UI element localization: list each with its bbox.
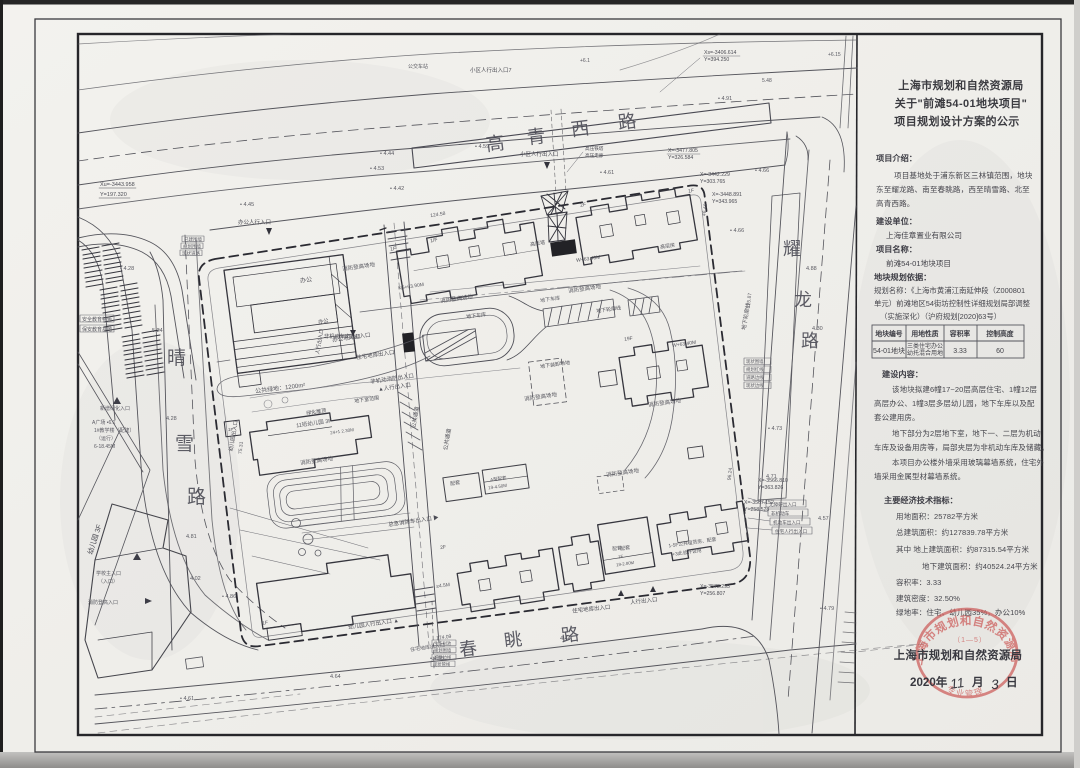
svg-text:Y=343.965: Y=343.965: [712, 199, 737, 205]
svg-text:地块规划依据：: 地块规划依据：: [874, 272, 931, 282]
svg-text:路: 路: [617, 110, 638, 133]
svg-text:幼托混合用地: 幼托混合用地: [907, 349, 943, 357]
svg-text:1#教学楼（配建）: 1#教学楼（配建）: [94, 427, 135, 434]
svg-text:耀: 耀: [783, 239, 801, 259]
svg-text:高层办公、1幢3层多层幼儿园，地下车库以及配: 高层办公、1幢3层多层幼儿园，地下车库以及配: [874, 398, 1035, 408]
svg-text:6-18.45M: 6-18.45M: [94, 444, 115, 450]
svg-text:• 4.53: • 4.53: [370, 166, 384, 172]
svg-text:Y=394.250: Y=394.250: [704, 57, 729, 63]
svg-text:Xu=-3443.958: Xu=-3443.958: [100, 182, 135, 188]
svg-text:X=-3477.805: X=-3477.805: [668, 148, 698, 154]
svg-text:三类住宅办公: 三类住宅办公: [907, 342, 943, 350]
svg-text:安全教育特色: 安全教育特色: [82, 316, 112, 323]
svg-text:现状围墙: 现状围墙: [746, 358, 764, 365]
svg-text:配套: 配套: [450, 479, 461, 487]
svg-text:小区人行出入口7: 小区人行出入口7: [470, 66, 512, 74]
svg-text:路: 路: [801, 331, 819, 351]
svg-text:Y=256.807: Y=256.807: [700, 591, 725, 597]
svg-text:• 4.91: • 4.91: [718, 96, 732, 102]
svg-text:4.28: 4.28: [166, 416, 177, 422]
svg-text:3.33: 3.33: [953, 348, 967, 355]
svg-text:本项目办公楼外墙采用玻璃幕墙系统，住宅外: 本项目办公楼外墙采用玻璃幕墙系统，住宅外: [892, 457, 1044, 467]
svg-text:住宅人行出入口: 住宅人行出入口: [775, 528, 808, 535]
svg-text:墙采用金属型材幕墙系统。: 墙采用金属型材幕墙系统。: [874, 471, 965, 481]
svg-text:• 4.61: • 4.61: [180, 696, 194, 702]
svg-text:东至耀龙路、南至春眺路，西至晴雪路、北至: 东至耀龙路、南至春眺路，西至晴雪路、北至: [876, 184, 1030, 194]
svg-text:• 4.44: • 4.44: [380, 151, 394, 157]
svg-text:（1—5）: （1—5）: [953, 636, 987, 644]
svg-text:1/F: 1/F: [430, 237, 438, 244]
svg-text:1F: 1F: [390, 246, 397, 253]
svg-text:控制高度: 控制高度: [986, 329, 1013, 338]
svg-text:关于"前滩54-01地块项目": 关于"前滩54-01地块项目": [895, 96, 1028, 110]
svg-text:套公建用房。: 套公建用房。: [874, 412, 920, 422]
svg-text:学校主入口: 学校主入口: [96, 570, 121, 577]
svg-text:X=-3566.810: X=-3566.810: [758, 478, 788, 484]
svg-text:公交车站: 公交车站: [408, 63, 428, 70]
svg-text:车库及设备用房等，局部夹层为非机动车库及储藏。: 车库及设备用房等，局部夹层为非机动车库及储藏。: [874, 442, 1049, 452]
svg-text:4.88: 4.88: [806, 266, 817, 272]
svg-text:• 4.66: • 4.66: [755, 168, 769, 174]
svg-text:项目规划设计方案的公示: 项目规划设计方案的公示: [894, 114, 1019, 128]
svg-text:11: 11: [949, 675, 965, 692]
svg-text:西: 西: [570, 117, 591, 140]
svg-text:月: 月: [971, 676, 984, 689]
svg-text:用地面积：25782平方米: 用地面积：25782平方米: [896, 511, 979, 521]
svg-text:（运行）: （运行）: [96, 435, 116, 442]
svg-text:X=-3573.295: X=-3573.295: [700, 584, 730, 590]
svg-text:规划红线: 规划红线: [746, 366, 764, 373]
svg-text:现状道路: 现状道路: [182, 250, 200, 257]
svg-text:用地性质: 用地性质: [910, 329, 938, 338]
svg-text:规划名称：《上海市黄浦江南延伸段（Z000801: 规划名称：《上海市黄浦江南延伸段（Z000801: [874, 286, 1025, 295]
svg-text:日: 日: [1006, 676, 1018, 689]
svg-text:新增绿化入口: 新增绿化入口: [100, 405, 130, 412]
svg-text:前滩54-01地块项目: 前滩54-01地块项目: [886, 258, 951, 268]
svg-text:4.30: 4.30: [812, 326, 823, 332]
svg-text:路: 路: [560, 624, 580, 646]
svg-text:保安教育基地: 保安教育基地: [82, 326, 112, 333]
svg-text:A广场 •6.1: A广场 •6.1: [92, 419, 116, 426]
svg-text:现状边线: 现状边线: [746, 382, 764, 389]
svg-text:规划围墙: 规划围墙: [434, 647, 452, 654]
svg-text:龙: 龙: [794, 290, 812, 310]
svg-text:该地块拟建6幢17~20层高层住宅、1幢12层: 该地块拟建6幢17~20层高层住宅、1幢12层: [892, 384, 1037, 394]
svg-text:容积率: 容积率: [950, 329, 971, 338]
svg-text:• 4.61: • 4.61: [600, 170, 614, 176]
svg-text:地下部分为2层地下室，地下一、二层为机动: 地下部分为2层地下室，地下一、二层为机动: [892, 428, 1041, 438]
svg-text:4.64: 4.64: [330, 674, 341, 680]
svg-text:4.02: 4.02: [190, 576, 201, 582]
svg-text:其中 地上建筑面积：约87315.54平方米: 其中 地上建筑面积：约87315.54平方米: [896, 544, 1029, 554]
svg-text:上海佳章置业有限公司: 上海佳章置业有限公司: [886, 230, 962, 240]
svg-text:• 4.73: • 4.73: [768, 426, 782, 432]
svg-text:2020年: 2020年: [910, 675, 948, 689]
svg-text:X=-3442.229: X=-3442.229: [700, 172, 730, 178]
svg-text:（入口）: （入口）: [98, 579, 118, 585]
svg-text:地下建筑面积：约40524.24平方米: 地下建筑面积：约40524.24平方米: [922, 561, 1038, 571]
svg-text:地块编号: 地块编号: [875, 329, 902, 338]
svg-text:建设内容：: 建设内容：: [882, 369, 923, 379]
svg-text:• 4.42: • 4.42: [390, 186, 404, 192]
svg-text:建筑密度：32.50%: 建筑密度：32.50%: [896, 593, 960, 603]
svg-text:青: 青: [526, 125, 547, 148]
svg-text:高压铁塔: 高压铁塔: [585, 145, 604, 152]
svg-text:5.24: 5.24: [152, 328, 163, 334]
svg-text:60: 60: [996, 348, 1004, 355]
svg-text:X=-3448.891: X=-3448.891: [712, 192, 742, 198]
svg-text:4.81: 4.81: [186, 534, 197, 540]
svg-text:容积率：3.33: 容积率：3.33: [896, 577, 941, 587]
svg-text:+6.1: +6.1: [580, 58, 590, 64]
svg-text:春: 春: [458, 638, 478, 660]
svg-text:机动车出入口: 机动车出入口: [773, 519, 801, 526]
svg-text:4.57: 4.57: [818, 516, 829, 522]
svg-text:高青西路。: 高青西路。: [876, 198, 914, 208]
svg-text:晴: 晴: [167, 347, 186, 369]
svg-text:2F: 2F: [580, 202, 587, 209]
svg-text:已建围墙: 已建围墙: [184, 236, 202, 243]
svg-text:2F: 2F: [440, 544, 447, 551]
svg-text:单元）前滩地区54街坊控制性详细规划局部调整: 单元）前滩地区54街坊控制性详细规划局部调整: [874, 299, 1031, 308]
svg-text:5.48: 5.48: [762, 78, 772, 84]
svg-text:消防登高入口: 消防登高入口: [88, 599, 118, 606]
svg-text:• 4.66: • 4.66: [730, 228, 744, 234]
svg-text:54-01地块: 54-01地块: [873, 346, 905, 355]
svg-text:项目介绍：: 项目介绍：: [876, 153, 917, 163]
svg-text:• 4.79: • 4.79: [820, 606, 834, 612]
svg-text:项目基地处于浦东新区三林镇范围，地块: 项目基地处于浦东新区三林镇范围，地块: [894, 170, 1033, 180]
svg-text:道路边线: 道路边线: [746, 374, 764, 381]
svg-text:办公人行入口: 办公人行入口: [238, 218, 271, 226]
svg-text:眺: 眺: [503, 629, 523, 651]
svg-text:1F: 1F: [688, 188, 695, 195]
svg-text:Y=326.584: Y=326.584: [668, 155, 693, 161]
svg-text:4.44: 4.44: [560, 636, 571, 642]
svg-text:• 4.86: • 4.86: [222, 594, 236, 600]
svg-text:路: 路: [187, 486, 206, 508]
svg-text:• 4.59: • 4.59: [475, 144, 489, 150]
svg-text:项目名称：: 项目名称：: [876, 244, 917, 254]
svg-text:1F: 1F: [262, 620, 269, 627]
svg-text:上海市规划和自然资源局: 上海市规划和自然资源局: [898, 78, 1023, 92]
svg-text:• 4.45: • 4.45: [240, 202, 254, 208]
svg-text:规划围墙: 规划围墙: [183, 243, 201, 250]
svg-text:主要经济技术指标：: 主要经济技术指标：: [884, 495, 958, 505]
svg-text:Y=303.765: Y=303.765: [700, 179, 725, 185]
svg-text:现状管线: 现状管线: [433, 661, 451, 668]
svg-text:上海市规划和自然资源局: 上海市规划和自然资源局: [894, 648, 1023, 662]
svg-text:总建筑面积：约127839.78平方米: 总建筑面积：约127839.78平方米: [896, 527, 1009, 537]
svg-text:• 4.28: • 4.28: [120, 266, 134, 272]
svg-text:Y=197.320: Y=197.320: [100, 192, 127, 198]
svg-text:建设单位：: 建设单位：: [876, 216, 917, 226]
svg-text:无障碍出入口: 无障碍出入口: [769, 501, 797, 508]
svg-text:小区人行出入口: 小区人行出入口: [520, 150, 559, 158]
svg-text:（实施深化）（沪府规划[2020]63号）: （实施深化）（沪府规划[2020]63号）: [880, 312, 1001, 321]
svg-text:+6.15: +6.15: [828, 52, 841, 58]
svg-text:道路边线: 道路边线: [434, 654, 452, 661]
svg-text:Xs=-3406.614: Xs=-3406.614: [704, 50, 737, 56]
svg-text:19F: 19F: [624, 336, 633, 343]
svg-text:Y=363.826: Y=363.826: [758, 485, 783, 491]
svg-text:非机动车: 非机动车: [771, 510, 790, 517]
svg-text:雪: 雪: [175, 434, 194, 455]
svg-text:高压走廊: 高压走廊: [585, 152, 604, 159]
